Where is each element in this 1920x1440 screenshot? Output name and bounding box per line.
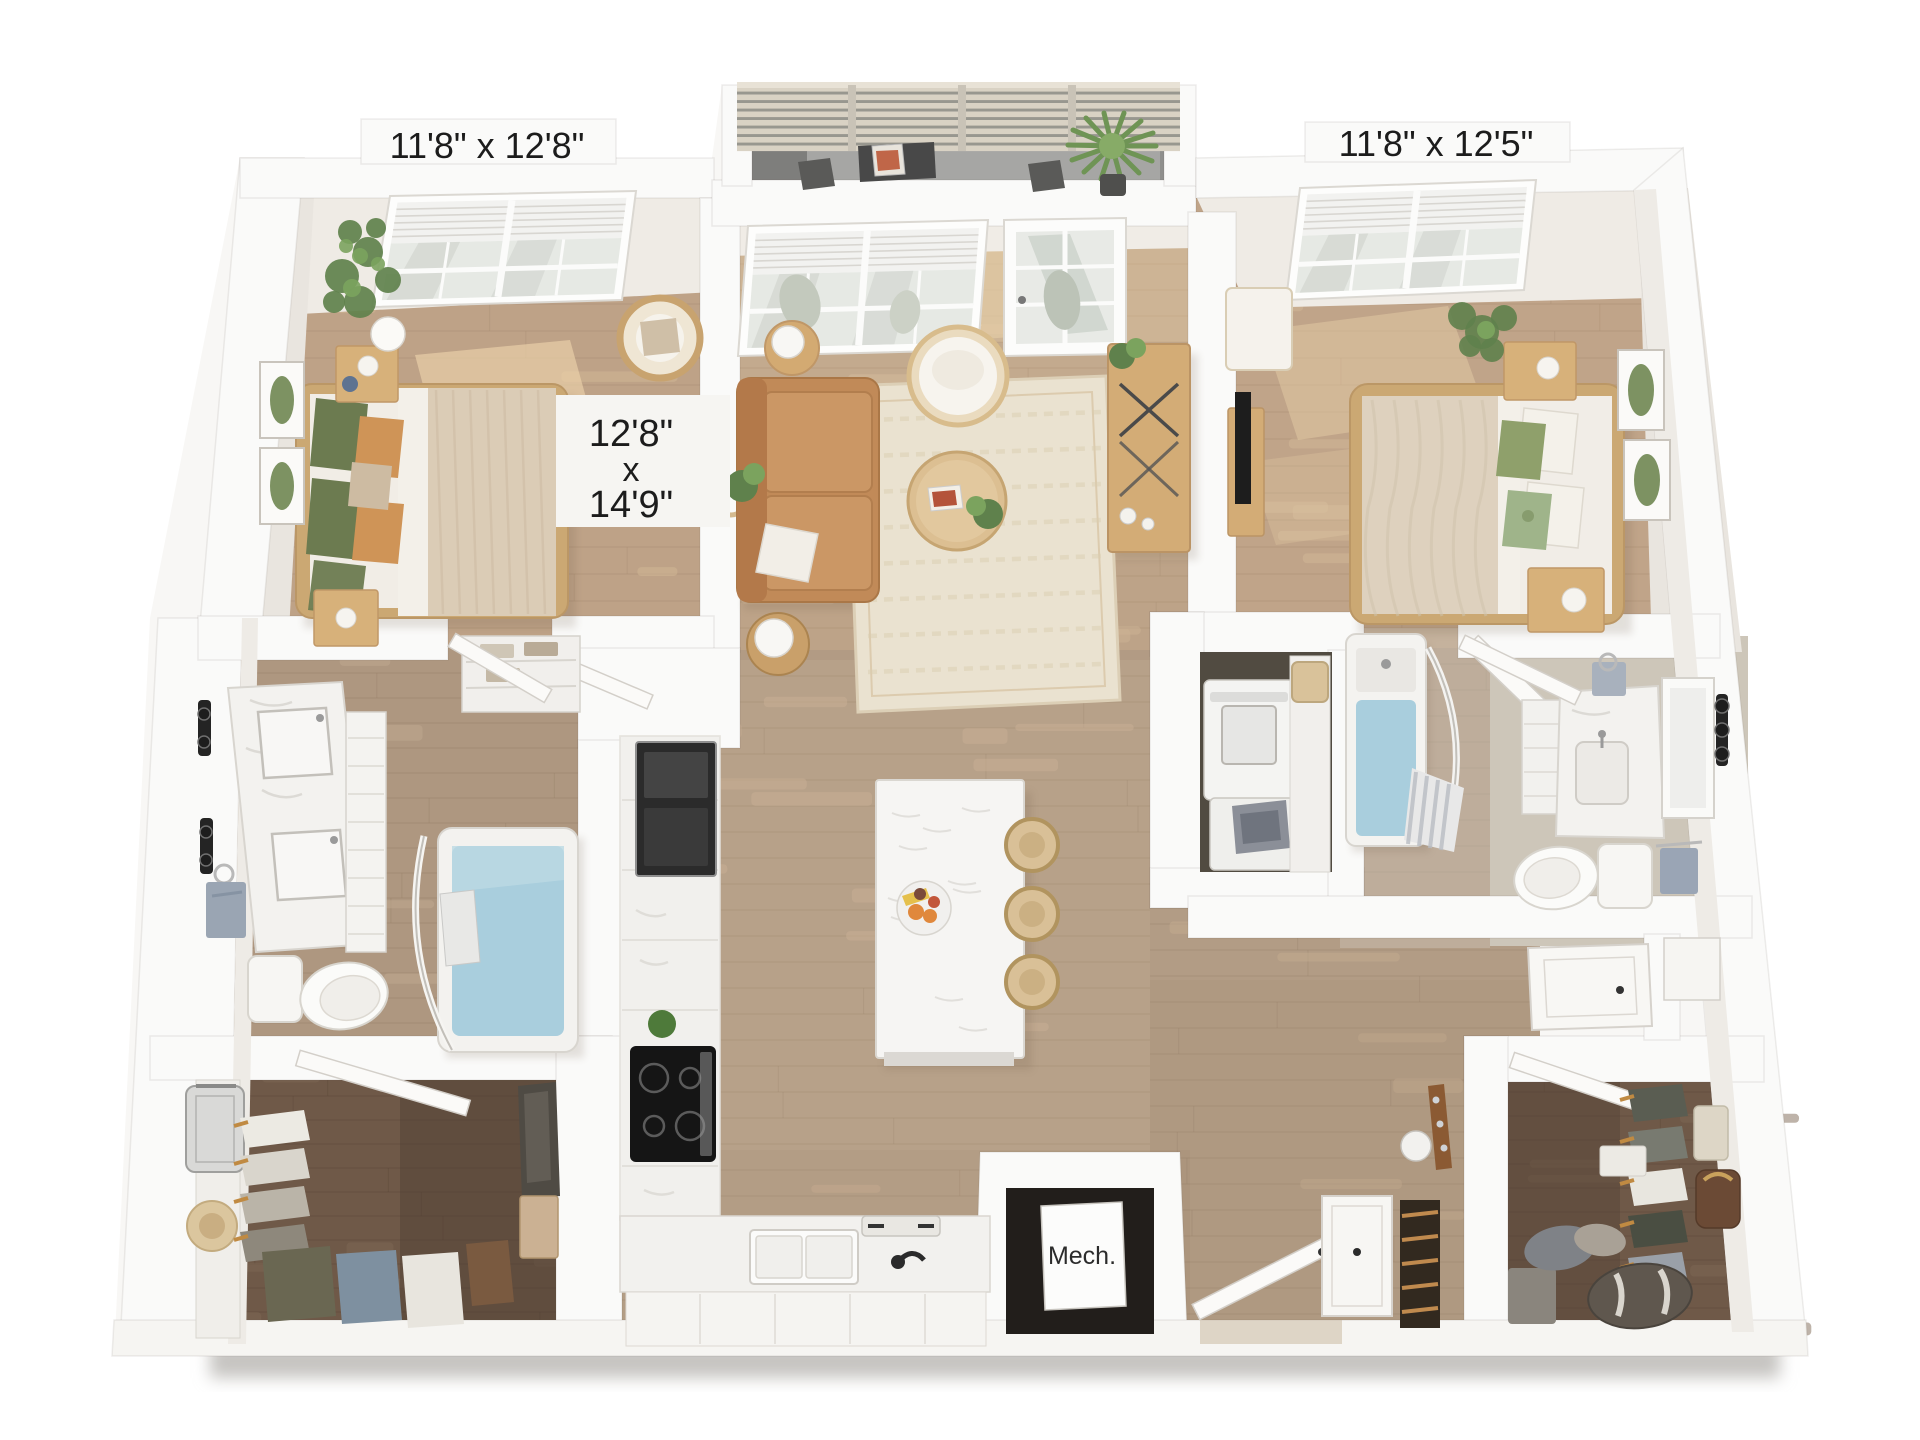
- svg-text:14'9": 14'9": [589, 484, 673, 526]
- svg-text:Mech.: Mech.: [1048, 1242, 1116, 1270]
- svg-text:11'8" x 12'5": 11'8" x 12'5": [1339, 123, 1534, 164]
- svg-text:11'8" x 12'8": 11'8" x 12'8": [390, 125, 585, 166]
- svg-text:12'8": 12'8": [589, 413, 673, 455]
